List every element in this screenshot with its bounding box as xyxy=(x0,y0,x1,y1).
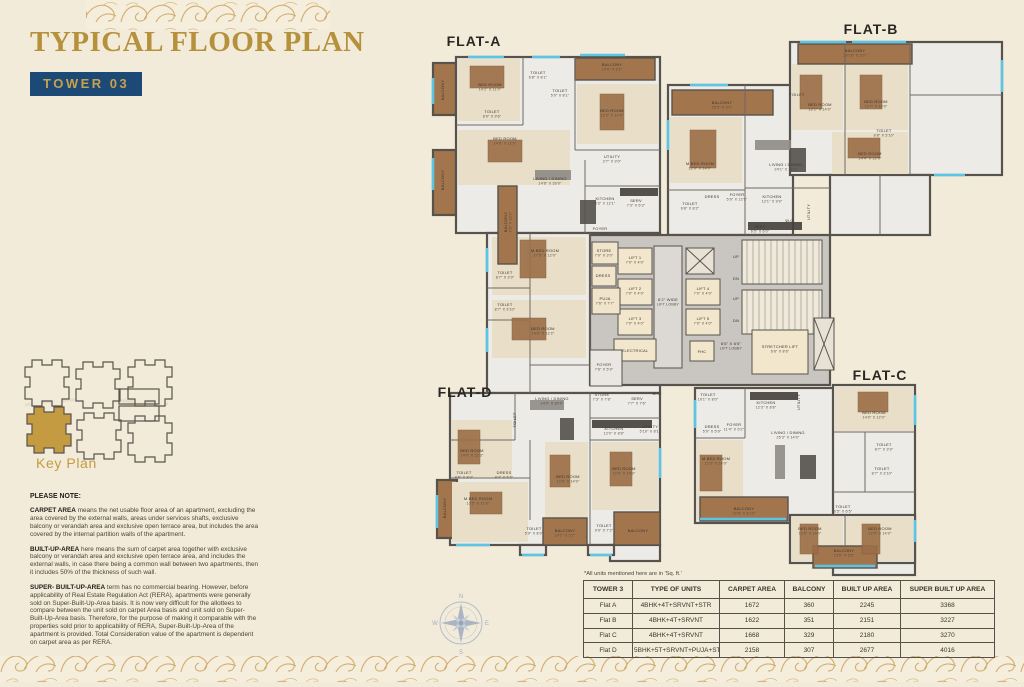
room-label: M.BED ROOM12'0" X 14'0" xyxy=(686,161,714,170)
room-label: BED ROOM12'0" X 14'0" xyxy=(798,526,822,535)
ornament-bottom-band xyxy=(0,656,1024,682)
table-cell: 1668 xyxy=(720,628,785,643)
room-label: BALCONY22'8" X 5'10" xyxy=(733,506,756,515)
flat-label: FLAT-D xyxy=(438,384,493,400)
room-label: DRESS xyxy=(596,273,611,278)
key-plan: Key Plan xyxy=(25,360,172,471)
room-label: BALCONY10'1" X 5'2" xyxy=(555,528,576,537)
key-plan-building xyxy=(76,362,120,408)
staircase xyxy=(742,240,822,284)
note-carpet-area: CARPET AREA means the net usable floor a… xyxy=(30,507,259,538)
room-label: UTILITY xyxy=(796,394,801,410)
brochure-page: Key Plan N E S W xyxy=(0,0,1024,682)
room-label: M.BED ROOM13'5" X 12'0" xyxy=(464,496,492,505)
room-label: FOYER7'8" X 5'9" xyxy=(595,362,614,371)
table-header-cell: TYPE OF UNITS xyxy=(633,581,720,599)
room-label: TOILET5'9" X 8'1" xyxy=(551,88,570,97)
table-row: Flat C4BHK+4T+SRVNT166832921803270 xyxy=(584,628,995,643)
room-label: W.C. xyxy=(785,218,794,223)
room-label: DRESS9'4" X 5'3" xyxy=(495,470,514,479)
room-label: BED ROOM14'2" X 11'0" xyxy=(478,82,502,91)
room-label: UTILITY xyxy=(806,204,811,220)
room-label: BALCONY20'10" X 5'2" xyxy=(844,48,867,57)
room-label: 6'2" WIDELIFT LOBBY xyxy=(657,297,680,306)
table-cell: Flat A xyxy=(584,599,633,614)
table-cell: 360 xyxy=(785,599,834,614)
compass-west-label: W xyxy=(432,621,438,627)
table-cell: 2158 xyxy=(720,643,785,658)
room-label: TOILET6'8" X 8'1" xyxy=(529,70,548,79)
table-cell: 2180 xyxy=(834,628,901,643)
table-header-cell: TOWER 3 xyxy=(584,581,633,599)
room-label: TOILET5'9" X 8'0" xyxy=(525,526,544,535)
room-label: BED ROOM14'4" X 12'0" xyxy=(858,151,882,160)
table-header-cell: CARPET AREA xyxy=(720,581,785,599)
staircase xyxy=(742,290,822,334)
room-label: TOILET xyxy=(512,412,517,427)
room-label: UP xyxy=(733,254,739,259)
room-label: BED ROOM14'0" X 12'3" xyxy=(460,448,484,457)
room-label: BALCONY25'5" X 5'0" xyxy=(712,100,733,109)
key-plan-building xyxy=(25,360,69,406)
table-cell: 3227 xyxy=(901,613,995,628)
table-cell: 4016 xyxy=(901,643,995,658)
room-label: BED ROOM12'1" X 14'0" xyxy=(808,102,832,111)
table-cell: 1622 xyxy=(720,613,785,628)
room-label: KITCHEN12'3" X 8'8" xyxy=(756,400,777,409)
table-cell: 3368 xyxy=(901,599,995,614)
room-label: BED ROOM14'8" X 12'0" xyxy=(493,136,517,145)
room-label: BED ROOM12'7" X 14'0" xyxy=(864,99,888,108)
page-title: TYPICAL FLOOR PLAN xyxy=(30,26,364,59)
table-header-row: TOWER 3TYPE OF UNITSCARPET AREABALCONYBU… xyxy=(584,581,995,599)
room-label: TOILET xyxy=(789,92,804,97)
table-cell: 329 xyxy=(785,628,834,643)
compass-rose: N E S W xyxy=(432,594,489,656)
key-plan-label: Key Plan xyxy=(36,455,97,471)
flat-label: FLAT-A xyxy=(447,33,502,49)
room-label: BALCONY xyxy=(628,528,649,533)
room-label: BED ROOM12'0" X 14'0" xyxy=(556,474,580,483)
room-label: BED ROOM12'0" X 14'0" xyxy=(868,526,892,535)
room-label: BALCONY13'5" X 5'5" xyxy=(834,548,855,557)
room-label: TOILET9'9" X 8'0" xyxy=(455,470,474,479)
room-label: DRESS5'9" X 5'9" xyxy=(703,424,722,433)
room-label: BALCONY xyxy=(440,80,445,101)
table-cell: 2151 xyxy=(834,613,901,628)
room-label: UP xyxy=(733,296,739,301)
notes-heading: PLEASE NOTE: xyxy=(30,493,259,501)
room-label: STORE7'0" X 3'0" xyxy=(595,248,614,257)
room-label: TOILET6'5" X 6'5" xyxy=(834,504,853,513)
key-plan-building xyxy=(128,416,172,462)
room-label: DN xyxy=(733,276,739,281)
notes-section: PLEASE NOTE: CARPET AREA means the net u… xyxy=(30,493,259,653)
room-label: BED ROOM12'2" X 14'0" xyxy=(600,108,624,117)
room-label: M.BED ROOM17'5" X 12'0" xyxy=(531,248,559,257)
room-label: STORE7'3" X 7'8" xyxy=(593,392,612,401)
compass-east-label: E xyxy=(485,621,489,627)
room-label: TOILET6'8" X 8'2" xyxy=(681,201,700,210)
table-cell: 2245 xyxy=(834,599,901,614)
room-label: BALCONY14'0" X 5'2" xyxy=(602,62,623,71)
room-label: BALCONY xyxy=(440,170,445,191)
room-label: KITCHEN12'0" X 8'8" xyxy=(604,426,625,435)
room-label: TOILET8'0" X 9'6" xyxy=(483,109,502,118)
note-super-built-up-area: SUPER- BUILT-UP-AREA term has no commerc… xyxy=(30,584,259,647)
units-footnote: *All units mentioned here are in 'Sq. ft… xyxy=(584,571,682,577)
room-label: ELECTRICAL xyxy=(622,348,649,353)
area-table-head: TOWER 3TYPE OF UNITSCARPET AREABALCONYBU… xyxy=(584,581,995,599)
table-cell: 4BHK+4T+SRVNT+STR xyxy=(633,599,720,614)
table-cell: 3270 xyxy=(901,628,995,643)
area-table-body: Flat A4BHK+4T+SRVNT+STR167236022453368Fl… xyxy=(584,599,995,658)
key-plan-building xyxy=(128,360,172,406)
table-cell: Flat D xyxy=(584,643,633,658)
room-label: KITCHEN8'3" X 12'1" xyxy=(595,196,616,205)
room-label: TOILET8'7" X 3'9" xyxy=(875,442,894,451)
room-label: BED ROOM14'6" X 12'2" xyxy=(531,326,555,335)
table-cell: 5BHK+5T+SRVNT+PUJA+STR xyxy=(633,643,720,658)
compass-north-label: N xyxy=(459,594,463,600)
compass-south-label: S xyxy=(459,650,463,656)
table-row: Flat B4BHK+4T+SRVNT162235121513227 xyxy=(584,613,995,628)
table-header-cell: BUILT UP AREA xyxy=(834,581,901,599)
table-header-cell: SUPER BUILT UP AREA xyxy=(901,581,995,599)
room-label: DN xyxy=(733,318,739,323)
room-label: M.BED ROOM12'3" X 14'0" xyxy=(702,456,730,465)
table-cell: 4BHK+4T+SRVNT xyxy=(633,613,720,628)
room-label: BALCONY xyxy=(442,498,447,519)
room-label: 6'6" X 6'6"LIFT LOBBY xyxy=(720,341,743,350)
table-header-cell: BALCONY xyxy=(785,581,834,599)
room-label: TOILET8'7" X 3'9" xyxy=(496,270,515,279)
table-row: Flat A4BHK+4T+SRVNT+STR167236022453368 xyxy=(584,599,995,614)
table-cell: Flat B xyxy=(584,613,633,628)
table-row: Flat D5BHK+5T+SRVNT+PUJA+STR215830726774… xyxy=(584,643,995,658)
table-cell: 4BHK+4T+SRVNT xyxy=(633,628,720,643)
flat-label: FLAT-C xyxy=(853,367,908,383)
room-label: UTILITY5'10" X 8'1" xyxy=(640,424,661,433)
area-table: TOWER 3TYPE OF UNITSCARPET AREABALCONYBU… xyxy=(583,580,995,658)
tower-badge: TOWER 03 xyxy=(30,72,142,96)
room-label: TOILET9'9" X 7'2" xyxy=(595,523,614,532)
room-label: BED ROOM14'0" X 12'0" xyxy=(862,410,886,419)
table-cell: 351 xyxy=(785,613,834,628)
room-label: BALCONY6'3" X 12'2" xyxy=(503,211,512,232)
room-label: BED ROOM12'0" X 14'0" xyxy=(612,466,636,475)
table-cell: 307 xyxy=(785,643,834,658)
room-label: UTILITY2'7" X 9'0" xyxy=(603,154,622,163)
room-label: DRESS xyxy=(705,194,720,199)
table-cell: 2677 xyxy=(834,643,901,658)
table-cell: 1672 xyxy=(720,599,785,614)
room-label: KITCHEN12'1" X 9'9" xyxy=(762,194,783,203)
table-cell: Flat C xyxy=(584,628,633,643)
room-label: FOYER7'5" X 5'9" xyxy=(591,226,610,235)
flat-label: FLAT-B xyxy=(844,21,899,37)
room-label: W.C. xyxy=(652,391,661,396)
key-plan-building xyxy=(77,413,121,459)
note-built-up-area: BUILT-UP-AREA here means the sum of carp… xyxy=(30,546,259,577)
key-plan-highlighted-tower xyxy=(27,407,71,453)
floor-plan: BED ROOM14'2" X 11'0"TOILET6'8" X 8'1"TO… xyxy=(433,21,1002,575)
room-label: FHC xyxy=(698,349,707,354)
